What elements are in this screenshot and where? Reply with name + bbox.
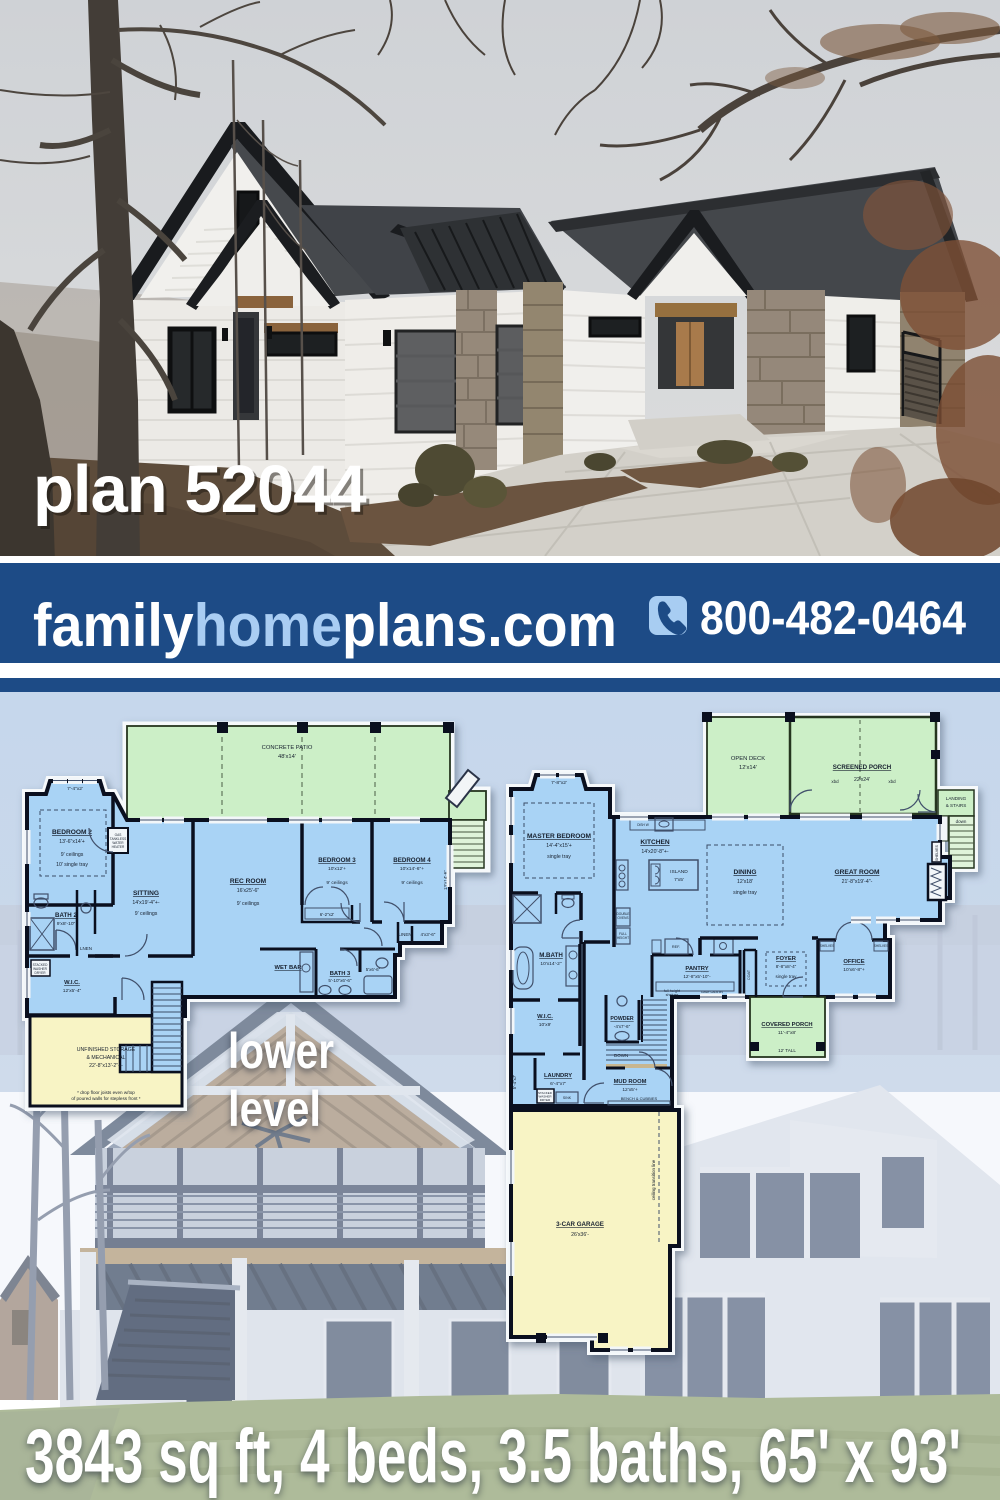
svg-text:12' TALL: 12' TALL [778,1048,796,1053]
svg-text:of poured walls for stepless f: of poured walls for stepless front * [71,1096,140,1101]
svg-text:UNFINISHED STORAGE: UNFINISHED STORAGE [77,1047,136,1053]
svg-text:lower: lower [228,1023,334,1079]
svg-text:ceiling transition line: ceiling transition line [651,1159,656,1200]
svg-text:LINEN: LINEN [398,932,411,937]
svg-text:5'x6'-6": 5'x6'-6" [366,967,381,972]
svg-text:WET BAR: WET BAR [274,965,302,971]
svg-text:10'x6'-8"+: 10'x6'-8"+ [843,967,865,973]
svg-text:plan 52044: plan 52044 [33,452,366,527]
svg-text:LAUNDRY: LAUNDRY [544,1073,572,1079]
svg-text:SHELVES: SHELVES [935,844,939,861]
svg-text:9' ceilings: 9' ceilings [326,880,348,886]
svg-text:16'x25'-6": 16'x25'-6" [237,888,260,894]
svg-text:SHELVES: SHELVES [820,944,834,948]
svg-text:3-CAR GARAGE: 3-CAR GARAGE [556,1221,604,1228]
svg-text:CONCRETE PATIO: CONCRETE PATIO [262,745,313,751]
svg-text:7'-8"x2': 7'-8"x2' [551,780,567,786]
svg-text:M.BATH: M.BATH [539,952,563,959]
svg-text:9' ceilings: 9' ceilings [61,852,84,858]
svg-text:11'-4"x8': 11'-4"x8' [778,1030,796,1036]
svg-text:REF.: REF. [672,945,680,949]
svg-text:& MECHANICAL: & MECHANICAL [87,1055,126,1061]
svg-text:22'x24': 22'x24' [854,777,870,783]
svg-text:OPEN DECK: OPEN DECK [731,756,765,762]
svg-text:12'x14': 12'x14' [739,765,757,771]
svg-text:ISLAND: ISLAND [670,869,688,875]
svg-text:BATH 2: BATH 2 [55,912,77,919]
svg-text:4'x3'-6": 4'x3'-6" [421,932,436,937]
svg-text:& STAIRS: & STAIRS [946,803,967,808]
svg-text:SITTING: SITTING [133,890,159,897]
svg-text:LNEN: LNEN [80,946,92,951]
svg-text:14'x19'-4"+-: 14'x19'-4"+- [132,900,160,906]
svg-text:BATH 3: BATH 3 [330,971,351,977]
svg-text:14'x20'-8"+-: 14'x20'-8"+- [641,849,669,855]
svg-text:7'-4"x2': 7'-4"x2' [67,786,83,792]
svg-text:OFFICE: OFFICE [843,959,864,965]
svg-text:14'-4"x15'+: 14'-4"x15'+ [546,843,572,849]
svg-text:COAT: COAT [747,969,751,980]
svg-text:DISH W: DISH W [637,823,649,827]
svg-text:single tray: single tray [776,974,798,979]
svg-text:DRYER: DRYER [540,1098,551,1102]
svg-text:OVENS: OVENS [617,916,628,920]
svg-text:12'-8"x5'-10"-: 12'-8"x5'-10"- [683,974,711,979]
svg-text:PANTRY: PANTRY [685,966,708,972]
svg-text:BEDROOM 3: BEDROOM 3 [318,857,356,864]
svg-text:SHELVES: SHELVES [874,944,888,948]
svg-text:HEIGHT: HEIGHT [617,936,629,940]
svg-text:* drop floor joists even w/top: * drop floor joists even w/top [77,1090,135,1095]
svg-text:3843 sq ft, 4 beds, 3.5 baths,: 3843 sq ft, 4 beds, 3.5 baths, 65' x 93' [25,1414,961,1499]
svg-text:BENCH & CUBBIES: BENCH & CUBBIES [621,1096,658,1101]
svg-text:W.I.C.: W.I.C. [537,1014,553,1020]
svg-text:10' single tray: 10' single tray [56,862,88,868]
svg-text:single tray: single tray [547,854,571,860]
svg-text:7'x5': 7'x5' [674,877,684,883]
svg-text:12'x5'-4": 12'x5'-4" [63,988,82,994]
svg-text:KITCHEN: KITCHEN [640,839,670,846]
svg-text:COVERED PORCH: COVERED PORCH [761,1022,812,1028]
svg-text:5'-10"x6'-6": 5'-10"x6'-6" [328,978,352,983]
svg-text:SINK: SINK [563,1096,572,1100]
svg-text:8'-8"x8'-4": 8'-8"x8'-4" [776,964,797,969]
svg-text:10'x14'-6"+: 10'x14'-6"+ [400,866,424,872]
svg-text:level: level [228,1081,321,1137]
svg-text:10'x9': 10'x9' [539,1022,552,1028]
svg-text:LANDING: LANDING [946,796,967,801]
svg-text:9' ceilings: 9' ceilings [135,911,158,917]
svg-text:down: down [956,819,967,824]
svg-text:MUD ROOM: MUD ROOM [614,1079,647,1085]
svg-text:6'-2"x2': 6'-2"x2' [320,912,335,917]
svg-text:POWDER: POWDER [610,1016,634,1022]
svg-text:W.I.C.: W.I.C. [64,980,80,986]
svg-text:800-482-0464: 800-482-0464 [700,591,966,644]
svg-text:familyhomeplans.com: familyhomeplans.com [33,592,617,659]
svg-text:xbd: xbd [888,779,896,784]
svg-text:HEATER: HEATER [112,845,125,849]
svg-text:BEDROOM 2: BEDROOM 2 [52,829,92,836]
svg-text:26'x36'-: 26'x36'- [571,1232,589,1238]
svg-text:DOWN: DOWN [614,1053,628,1058]
svg-text:shelves: shelves [666,993,679,997]
svg-text:BEDROOM 4: BEDROOM 4 [393,857,431,864]
svg-text:xbd: xbd [831,779,839,784]
svg-text:REC ROOM: REC ROOM [230,878,267,885]
svg-text:SCREENED PORCH: SCREENED PORCH [833,764,892,771]
svg-text:22'-8"x13'-2"+-: 22'-8"x13'-2"+- [89,1063,123,1069]
svg-text:-4'x7'-6": -4'x7'-6" [614,1024,631,1029]
svg-text:13'-6"x14'+: 13'-6"x14'+ [59,839,85,845]
svg-text:12'x18': 12'x18' [737,879,753,885]
svg-text:DINING: DINING [733,869,756,876]
svg-text:6'-4"x7': 6'-4"x7' [550,1081,566,1087]
svg-text:GREAT ROOM: GREAT ROOM [835,869,880,876]
svg-text:10'x12'+: 10'x12'+ [328,866,346,872]
svg-text:FOYER: FOYER [776,956,797,962]
svg-text:9' ceilings: 9' ceilings [401,880,423,886]
svg-text:9' ceilings: 9' ceilings [237,901,260,907]
svg-text:21'-8"x19'-4"-: 21'-8"x19'-4"- [842,879,873,885]
svg-text:DRYER: DRYER [34,971,46,975]
svg-text:48'x14': 48'x14' [278,754,296,760]
svg-text:9'x8'-10": 9'x8'-10" [57,921,76,927]
svg-text:single tray: single tray [733,890,757,896]
svg-text:MASTER BEDROOM: MASTER BEDROOM [527,833,592,840]
svg-text:10'x14'-2": 10'x14'-2" [540,961,562,967]
svg-text:12'x5'+: 12'x5'+ [622,1087,637,1093]
svg-text:5'-4"x7': 5'-4"x7' [512,1075,517,1090]
